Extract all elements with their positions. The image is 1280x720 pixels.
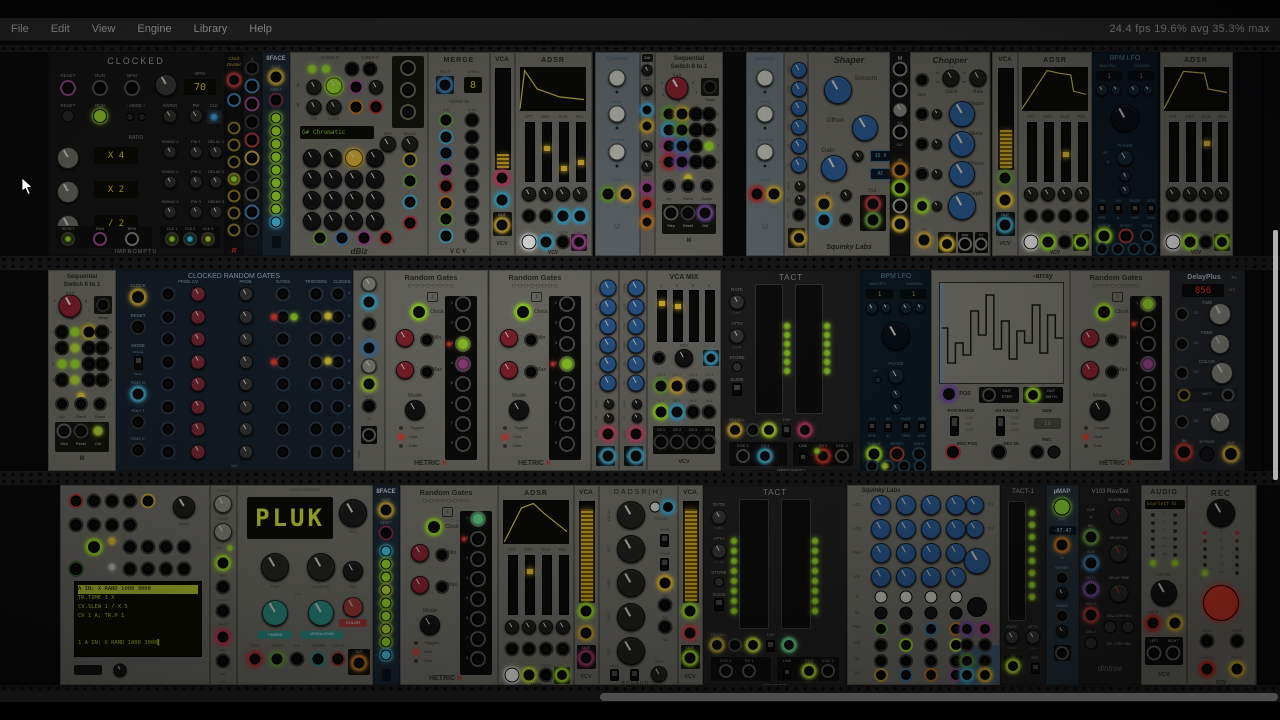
jack[interactable] [675,123,690,138]
jack[interactable] [379,231,394,246]
jack[interactable] [331,287,346,302]
module-adsr-2[interactable]: ADSRATTDECSUSRELPUSHGATERETRENVVCV [1018,52,1093,256]
jack[interactable] [915,167,929,181]
knob[interactable] [757,106,774,123]
knob[interactable] [1081,361,1099,379]
jack[interactable] [1097,229,1112,244]
jack[interactable] [349,100,364,115]
knob[interactable] [943,70,960,87]
jack[interactable] [161,399,176,414]
jack[interactable] [866,213,881,228]
jack[interactable] [767,187,782,202]
jack[interactable] [439,113,454,128]
jack[interactable] [572,235,586,249]
jack[interactable] [331,332,346,347]
jack[interactable] [495,193,510,208]
jack[interactable] [245,205,260,220]
knob[interactable] [420,615,440,635]
knob[interactable] [380,136,396,152]
jack[interactable] [670,379,685,394]
knob[interactable] [1166,187,1180,201]
knob[interactable] [362,277,377,292]
knob[interactable] [609,70,626,87]
jack[interactable] [1096,304,1112,320]
jack[interactable] [702,107,717,122]
jack[interactable] [470,611,486,627]
jack[interactable] [1140,336,1156,352]
jack[interactable] [123,518,138,533]
knob[interactable] [1075,187,1089,201]
knob[interactable] [214,495,232,513]
knob[interactable] [190,146,203,159]
knob[interactable] [366,212,384,230]
jack[interactable] [698,206,713,221]
jack[interactable] [702,155,717,170]
button[interactable] [650,502,661,513]
switch[interactable] [1032,664,1039,673]
jack[interactable] [313,231,328,246]
knob[interactable] [1090,400,1110,420]
jack[interactable] [1084,556,1099,571]
knob[interactable] [57,181,79,203]
module-ad-envelope[interactable]: ATTACKDECAYLINTRIGATTACKDECAYENVEOCA D [210,485,238,685]
jack[interactable] [1055,538,1070,553]
jack[interactable] [276,422,291,437]
jack[interactable] [57,424,72,439]
slider[interactable] [1186,122,1196,182]
jack[interactable] [998,193,1013,208]
knob[interactable] [210,146,223,159]
jack[interactable] [792,231,806,245]
jack[interactable] [69,494,84,509]
jack[interactable] [1200,662,1215,677]
jack[interactable] [276,377,291,392]
button[interactable] [271,152,282,163]
jack[interactable] [710,638,724,652]
jack[interactable] [55,397,69,411]
button[interactable] [93,109,107,123]
knob[interactable] [617,603,645,631]
jack[interactable] [1183,209,1198,224]
button[interactable] [271,113,282,124]
button[interactable] [732,362,742,372]
jack[interactable] [1175,337,1189,351]
module-adsr-4[interactable]: ADSRATTDECSUSRELPUSHGATERETRENVVCV [498,485,575,685]
jack[interactable] [470,571,486,587]
knob[interactable] [366,170,384,188]
knob[interactable] [932,109,942,119]
module-8face-2[interactable]: 8FACESLOTRESET [373,485,401,685]
knob[interactable] [896,495,916,515]
knob[interactable] [600,299,617,316]
slider[interactable] [525,555,535,615]
knob[interactable] [189,109,203,123]
knob[interactable] [505,620,519,634]
jack[interactable] [74,397,88,411]
module-blank-dark-1[interactable] [723,52,747,256]
jack[interactable] [216,556,231,571]
jack[interactable] [465,129,480,144]
jack[interactable] [1140,316,1156,332]
jack[interactable] [703,80,717,94]
jack[interactable] [245,169,260,184]
module-vca-mix[interactable]: VCA MIX1234MIXCV 1CV 2CV 3CV 4IN 1IN 2IN… [647,270,722,471]
jack[interactable] [893,163,908,178]
jack[interactable] [309,422,324,437]
jack[interactable] [654,379,669,394]
jack[interactable] [403,195,418,210]
knob[interactable] [609,144,626,161]
knob[interactable] [324,191,342,209]
jack[interactable] [654,435,669,450]
jack[interactable] [978,654,992,668]
module-macro-oscillator[interactable]: macro oscillatorPLUKEDITFINECOARSEo | oF… [237,485,374,685]
module-dbiz-grid-seq[interactable]: X-CLK-YX-RES-YXYDIRLOCKG# ChromaticKEYSC… [290,52,429,256]
jack[interactable] [728,638,742,652]
knob[interactable] [1209,303,1231,325]
jack[interactable] [641,198,654,211]
jack[interactable] [1166,209,1181,224]
knob[interactable] [628,356,645,373]
jack[interactable] [998,218,1013,233]
button[interactable] [381,546,392,557]
switch[interactable] [767,641,774,651]
button[interactable] [381,559,392,570]
jack[interactable] [131,415,146,430]
jack[interactable] [675,155,690,170]
knob[interactable] [164,176,177,189]
button[interactable] [62,110,75,123]
module-umap[interactable]: µMAP▮▮▮▮▮-07.47INOFFSETSCALE [1046,485,1080,685]
jack[interactable] [675,139,690,154]
jack[interactable] [573,209,588,224]
jack[interactable] [555,668,569,682]
knob[interactable] [604,399,614,409]
knob[interactable] [1110,506,1129,525]
module-dadsr-h[interactable]: DADSR(H)DELAYATTDECSUSRELTRIGGERMODECYCL… [599,485,679,685]
jack[interactable] [539,668,554,683]
knob[interactable] [712,510,727,525]
switch[interactable] [135,357,142,369]
knob[interactable] [666,77,689,100]
jack[interactable] [362,317,377,332]
jack[interactable] [1175,415,1189,429]
knob[interactable] [628,375,645,392]
knob[interactable] [948,192,976,220]
jack[interactable] [579,651,594,666]
jack[interactable] [1230,634,1245,649]
wave-display[interactable] [939,282,1064,384]
jack[interactable] [1140,396,1156,412]
module-teletype[interactable]: paramA IN; X RAND 1000 3000TR.TIME 1 XCV… [60,485,211,685]
jack[interactable] [465,162,480,177]
jack[interactable] [362,377,377,392]
menu-item-file[interactable]: File [0,18,40,40]
jack[interactable] [579,626,594,641]
module-vca-3[interactable]: VCAINOUTVCV [574,485,600,685]
knob[interactable] [261,553,289,581]
knob[interactable] [791,62,807,78]
jack[interactable] [403,174,418,189]
jack[interactable] [1128,243,1141,256]
module-seq-switch-8to1-a[interactable]: SequentialSwitch 8 to 13 4 526178Steps15… [655,52,724,256]
knob[interactable] [239,355,253,369]
switch[interactable] [733,384,741,395]
knob[interactable] [893,103,908,118]
jack[interactable] [248,652,263,667]
jack[interactable] [1140,376,1156,392]
module-shaper[interactable]: ShaperSmoothOffsetGain16 XACInOutSquinky… [808,52,891,256]
jack[interactable] [141,494,156,509]
jack[interactable] [345,62,360,77]
jack[interactable] [958,237,972,251]
jack[interactable] [893,125,908,140]
jack[interactable] [641,104,654,117]
slider[interactable] [689,290,699,342]
module-seq-switch-8to1-b[interactable]: SequentialSwitch 8 to 13 4 526178Steps15… [48,270,117,471]
jack[interactable] [470,591,486,607]
menu-item-help[interactable]: Help [238,18,283,40]
jack[interactable] [95,325,110,340]
jack[interactable] [125,232,139,246]
switch[interactable] [1132,205,1138,213]
switch[interactable] [631,670,638,680]
jack[interactable] [228,207,241,220]
knob[interactable] [303,191,321,209]
jack[interactable] [559,376,575,392]
jack[interactable] [92,80,108,96]
jack[interactable] [309,332,324,347]
jack[interactable] [141,540,156,555]
jack[interactable] [87,494,102,509]
module-random-gates-1[interactable]: Random Gates□-□-□-□-□-□-□-□2Clock1234567… [385,270,489,471]
rack-area[interactable]: CLOCKEDRESETRUNBPMBPM70RESETRUN- MODE +S… [0,40,1280,700]
knob[interactable] [964,548,990,574]
jack[interactable] [1215,235,1229,249]
knob[interactable] [946,567,966,587]
jack[interactable] [465,212,480,227]
knob[interactable] [617,569,645,597]
jack[interactable] [556,235,571,250]
jack[interactable] [455,396,471,412]
jack[interactable] [670,405,685,420]
knob[interactable] [366,191,384,209]
menu-item-edit[interactable]: Edit [40,18,81,40]
jack[interactable] [495,171,510,186]
knob[interactable] [500,361,518,379]
jack[interactable] [750,187,765,202]
jack[interactable] [924,668,938,682]
knob[interactable] [1111,104,1139,132]
jack[interactable] [309,377,324,392]
knob[interactable] [966,496,984,514]
knob[interactable] [210,206,223,219]
slider[interactable] [998,68,1014,170]
jack[interactable] [349,80,364,95]
knob[interactable] [343,561,363,581]
jack[interactable] [915,137,929,151]
module-blank-dark-3[interactable] [1245,270,1264,471]
knob[interactable] [1056,625,1068,637]
jack[interactable] [400,60,416,76]
jack[interactable] [105,494,120,509]
jack[interactable] [87,518,102,533]
jack[interactable] [898,460,911,473]
knob[interactable] [600,280,617,297]
jack[interactable] [400,104,416,120]
button[interactable] [875,377,882,384]
module-8face[interactable]: 8FACESLOTRESET [262,52,291,256]
button[interactable] [900,607,913,620]
jack[interactable] [758,449,772,463]
jack[interactable] [742,664,756,678]
jack[interactable] [228,224,241,237]
jack[interactable] [161,354,176,369]
knob[interactable] [1110,544,1129,563]
jack[interactable] [1230,662,1245,677]
jack[interactable] [556,209,571,224]
horizontal-scrollbar[interactable] [0,692,1280,702]
jack[interactable] [245,223,260,238]
module-bpm-lfo-2[interactable]: BPM LFOMULTIPLYDIVISION1:1PHASE90°CLKUNI… [861,270,932,471]
jack[interactable] [629,427,644,442]
knob[interactable] [632,413,642,423]
terminal-screen[interactable]: A IN; X RAND 1000 3000TR.TIME 1 XCV.SLEW… [74,581,202,657]
knob[interactable] [609,106,626,123]
jack[interactable] [123,540,138,555]
jack[interactable] [1096,243,1109,256]
jack[interactable] [866,197,881,212]
jack[interactable] [438,78,453,93]
knob[interactable] [1143,85,1153,95]
jack[interactable] [1199,235,1214,250]
button[interactable] [271,139,282,150]
jack[interactable] [55,325,70,340]
knob[interactable] [900,302,912,314]
jack[interactable] [245,133,260,148]
knob[interactable] [522,620,536,634]
knob[interactable] [539,620,553,634]
jack[interactable] [465,146,480,161]
knob[interactable] [303,149,321,167]
knob[interactable] [155,74,177,96]
jack[interactable] [702,379,717,394]
jack[interactable] [309,354,324,369]
button[interactable] [381,598,392,609]
jack[interactable] [654,405,669,420]
jack[interactable] [331,399,346,414]
knob[interactable] [239,422,253,436]
jack[interactable] [817,213,832,228]
slider[interactable] [705,290,715,342]
switch[interactable] [715,599,723,610]
jack[interactable] [899,654,913,668]
jack[interactable] [893,199,908,214]
jack[interactable] [331,377,346,392]
jack[interactable] [915,199,929,213]
knob[interactable] [191,399,206,414]
module-chopper[interactable]: Chopperx 1x2x4x1intClockRateckinShapeSke… [910,52,991,256]
jack[interactable] [331,652,346,667]
jack[interactable] [1041,209,1056,224]
knob[interactable] [345,149,363,167]
knob[interactable] [307,553,335,581]
module-random-gates-4[interactable]: Random Gates□-□-□-□-□-□-□-□7Clock1234567… [400,485,499,685]
switch[interactable] [869,423,875,431]
jack[interactable] [331,422,346,437]
jack[interactable] [1058,209,1073,224]
switch[interactable] [611,670,618,680]
jack[interactable] [893,181,908,196]
jack[interactable] [69,518,84,533]
knob[interactable] [1096,84,1108,96]
button[interactable] [1122,621,1135,634]
switch[interactable] [997,417,1004,435]
jack[interactable] [161,422,176,437]
jack[interactable] [915,73,929,87]
jack[interactable] [539,235,554,250]
jack[interactable] [893,83,908,98]
slider[interactable] [1044,122,1054,182]
knob[interactable] [882,322,910,350]
knob[interactable] [1151,580,1177,606]
module-mini-vco-1[interactable]: octavesemifinewavepwfmpwmfmv/octout [784,52,809,256]
jack[interactable] [124,80,140,96]
module-mini-vco-2[interactable]: octavesemifinewavepwfmpwmfmv/octout [591,270,620,471]
knob[interactable] [214,523,232,541]
jack[interactable] [559,316,575,332]
knob[interactable] [791,81,807,97]
jack[interactable] [245,115,260,130]
jack[interactable] [874,654,888,668]
slider[interactable] [576,122,586,182]
button[interactable] [271,178,282,189]
jack[interactable] [1140,229,1154,243]
switch[interactable] [783,426,790,436]
jack[interactable] [1112,243,1125,256]
module-adsr-3[interactable]: ADSRATTDECSUSRELPUSHGATERETRENVVCV [1160,52,1234,256]
jack[interactable] [960,638,974,652]
jack[interactable] [1006,659,1020,673]
jack[interactable] [228,190,241,203]
jack[interactable] [130,319,146,335]
jack[interactable] [123,494,138,509]
knob[interactable] [1058,187,1072,201]
jack[interactable] [1055,571,1069,585]
switch[interactable] [661,535,668,546]
knob[interactable] [757,144,774,161]
jack[interactable] [899,638,913,652]
knob[interactable] [628,280,645,297]
switch[interactable] [903,423,909,431]
jack[interactable] [1084,582,1099,597]
jack[interactable] [276,399,291,414]
slider[interactable] [683,501,699,603]
knob[interactable] [853,151,864,162]
module-quantizer-1[interactable]: QuantizerModeOct ShiftV/OctInOut☺ [595,52,641,256]
jack[interactable] [1215,209,1230,224]
jack[interactable] [1147,646,1162,661]
button[interactable] [381,637,392,648]
button[interactable] [925,591,938,604]
jack[interactable] [1075,209,1090,224]
jack[interactable] [403,153,418,168]
button[interactable] [967,597,987,617]
jack[interactable] [1024,209,1039,224]
knob[interactable] [239,310,253,324]
slider[interactable] [579,501,595,603]
jack[interactable] [728,423,742,437]
